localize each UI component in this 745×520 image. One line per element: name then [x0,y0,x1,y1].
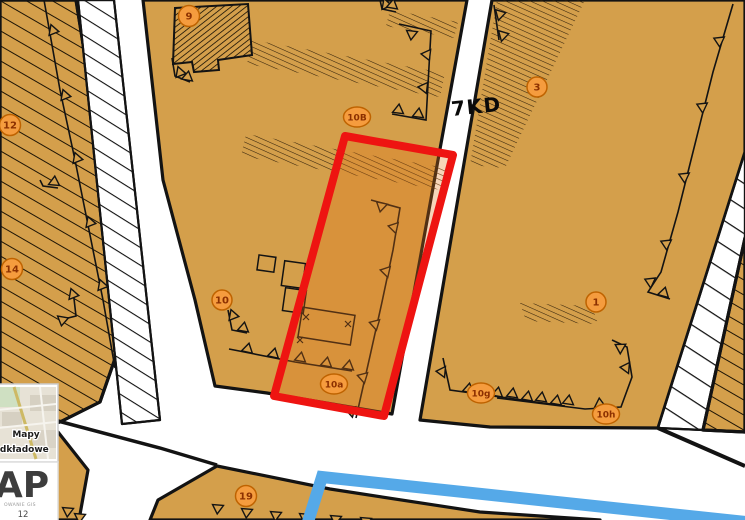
parcel-label-10B: 10B [344,107,371,127]
svg-text:10: 10 [215,296,229,307]
basemap-title-line1: Mapy [12,430,39,440]
logo-text: AP [0,465,49,506]
basemap-thumbnail[interactable]: Mapy podkładowe [0,384,58,462]
basemap-title-line2: podkładowe [0,445,49,455]
parcel-label-1: 1 [586,292,606,312]
svg-text:3: 3 [534,83,541,94]
parcel-label-10: 10 [212,290,232,310]
parcel-label-10a: 10a [321,374,348,394]
svg-text:12: 12 [3,121,17,132]
parcel-label-14: 14 [2,259,23,280]
map-canvas[interactable]: 7KD 9 12 14 10B 3 10 1 10a 10g 10h 19 [0,0,745,520]
svg-text:10g: 10g [472,390,491,400]
logo-panel: AP OWANIE GIS 12 [0,462,58,520]
parcel-label-19: 19 [236,486,257,507]
logo-number: 12 [18,510,29,520]
parcel-label-10g: 10g [468,383,495,403]
parcel-label-9: 9 [179,6,200,27]
svg-text:9: 9 [186,12,193,23]
svg-text:1: 1 [593,298,600,309]
logo-subtext: OWANIE GIS [4,502,36,508]
parcel-label-3: 3 [527,77,547,97]
svg-text:10h: 10h [597,411,616,421]
svg-text:19: 19 [239,492,253,503]
parcel-label-12: 12 [0,115,21,136]
map-viewport[interactable]: 7KD 9 12 14 10B 3 10 1 10a 10g 10h 19 [0,0,745,520]
svg-text:10a: 10a [325,381,344,391]
parcel-label-10h: 10h [593,404,620,424]
svg-text:14: 14 [5,265,19,276]
svg-text:10B: 10B [347,114,367,124]
